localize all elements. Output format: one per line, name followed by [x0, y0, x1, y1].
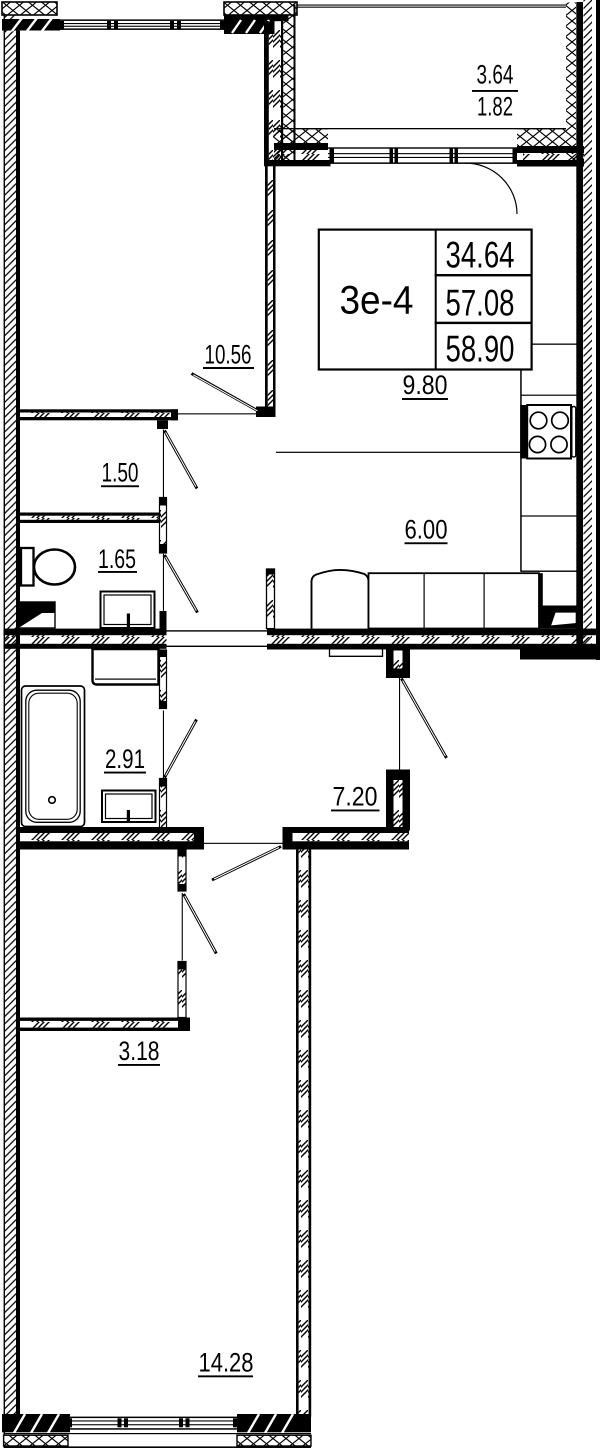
svg-text:3.18: 3.18	[119, 1036, 160, 1066]
svg-text:57.08: 57.08	[446, 283, 515, 324]
svg-text:2.91: 2.91	[105, 744, 145, 774]
svg-text:6.00: 6.00	[405, 515, 448, 545]
svg-text:1.50: 1.50	[102, 458, 139, 488]
svg-text:14.28: 14.28	[199, 1348, 254, 1378]
svg-text:3.64: 3.64	[477, 60, 514, 90]
svg-text:1.82: 1.82	[477, 92, 513, 122]
svg-text:9.80: 9.80	[403, 370, 448, 400]
svg-text:34.64: 34.64	[446, 235, 515, 276]
svg-text:10.56: 10.56	[205, 340, 252, 370]
svg-text:58.90: 58.90	[446, 329, 515, 370]
svg-text:7.20: 7.20	[333, 782, 378, 812]
svg-text:3е-4: 3е-4	[340, 279, 414, 323]
svg-text:1.65: 1.65	[98, 544, 136, 574]
